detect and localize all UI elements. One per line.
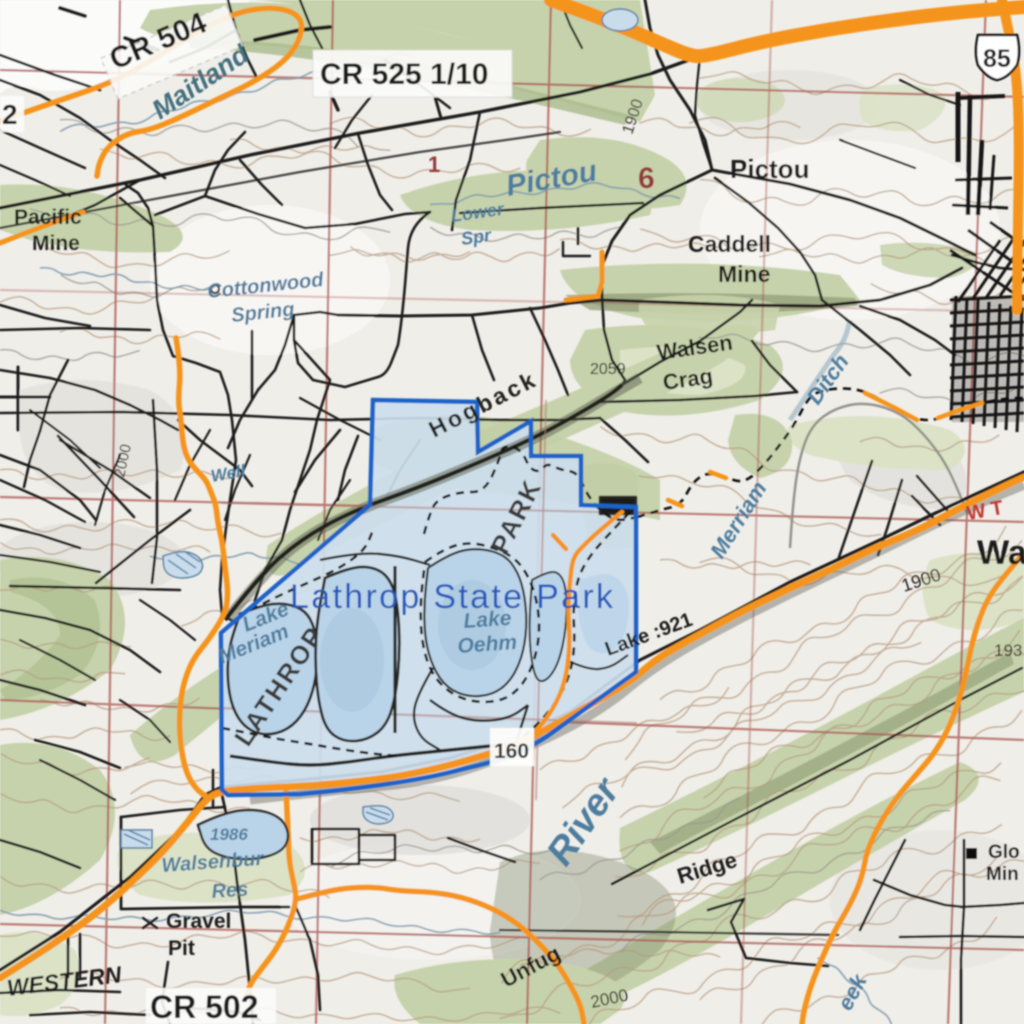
svg-text:Spr: Spr: [460, 225, 493, 249]
svg-text:Mine: Mine: [718, 261, 770, 287]
svg-text:Glo: Glo: [988, 842, 1020, 863]
svg-text:1: 1: [428, 152, 440, 177]
svg-text:Pictou: Pictou: [730, 154, 809, 184]
svg-text:Pit: Pit: [168, 937, 195, 960]
svg-text:Caddell: Caddell: [688, 231, 771, 257]
svg-text:1986: 1986: [210, 825, 248, 844]
svg-text:CR 502: CR 502: [150, 989, 259, 1024]
svg-text:Mine: Mine: [32, 232, 80, 255]
svg-text:2059: 2059: [590, 361, 626, 378]
svg-text:Lake: Lake: [463, 607, 513, 633]
svg-text:160: 160: [494, 740, 529, 763]
svg-text:2: 2: [2, 99, 18, 130]
svg-text:Gravel: Gravel: [166, 910, 231, 933]
svg-text:85: 85: [983, 45, 1011, 73]
svg-text:Res: Res: [211, 878, 249, 903]
svg-text:Pacific: Pacific: [14, 206, 82, 229]
svg-text:6: 6: [638, 162, 655, 195]
svg-text:CR 525 1/10: CR 525 1/10: [320, 58, 488, 91]
svg-text:Oehm: Oehm: [457, 631, 518, 658]
svg-text:Lathrop State Park: Lathrop State Park: [290, 578, 614, 616]
svg-text:193: 193: [994, 641, 1022, 660]
svg-text:Wa: Wa: [977, 534, 1024, 572]
svg-text:Min: Min: [986, 864, 1019, 885]
